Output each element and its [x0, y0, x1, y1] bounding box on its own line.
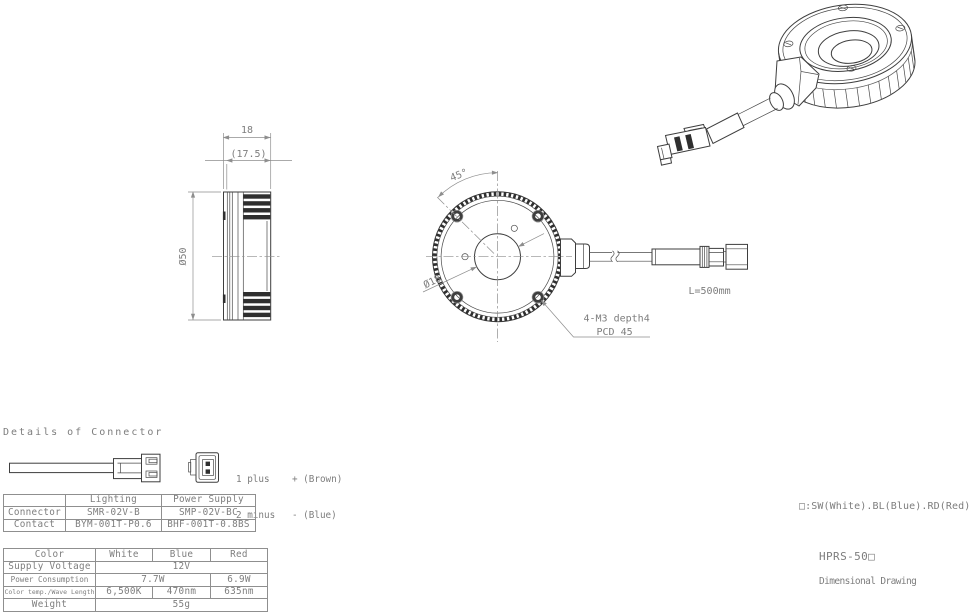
side-view: 18 (17.5) Ø50 — [177, 125, 292, 320]
model-number: HPRS-50□ — [819, 551, 875, 562]
dim-width-inner: (17.5) — [230, 149, 266, 160]
dim-mount-angle: 45° — [449, 167, 470, 184]
connector-table: Lighting Power Supply Connector SMR-02V-… — [3, 494, 256, 532]
label-mount-holes-1: 4-M3 depth4 — [584, 314, 650, 325]
connector-lighting-value: SMR-02V-B — [66, 507, 162, 519]
color-temp-white: 6,500K — [96, 586, 153, 599]
connector-table-corner — [4, 495, 66, 507]
dim-width: 18 — [241, 125, 253, 136]
table-row: Supply Voltage 12V — [4, 561, 268, 574]
details-of-connector-title: Details of Connector — [3, 428, 163, 438]
connector-table-header-lighting: Lighting — [66, 495, 162, 507]
power-consumption-red: 6.9W — [211, 574, 268, 587]
cable-end-connector — [726, 244, 748, 269]
connector-table-header-power: Power Supply — [162, 495, 256, 507]
table-row: Color White Blue Red — [4, 549, 268, 562]
pin1-label: 1 plus + (Brown) — [236, 474, 342, 486]
perspective-view — [658, 0, 921, 165]
label-cable-length: L=500mm — [689, 286, 731, 297]
spec-header-color: Color — [4, 549, 96, 562]
connector-row-label: Connector — [4, 507, 66, 519]
weight-value: 55g — [96, 599, 268, 612]
spec-header-white: White — [96, 549, 153, 562]
contact-lighting-value: BYM-001T-P0.6 — [66, 519, 162, 531]
table-row: Weight 55g — [4, 599, 268, 612]
spec-header-blue: Blue — [153, 549, 211, 562]
connector-power-value: SMP-02V-BC — [162, 507, 256, 519]
supply-voltage-label: Supply Voltage — [4, 561, 96, 574]
label-mount-holes-2: PCD 45 — [597, 327, 633, 338]
spec-header-red: Red — [211, 549, 268, 562]
front-view: 45° Ø18 4-M3 depth4 PCD 45 L=500mm — [421, 167, 747, 342]
power-consumption-white-blue: 7.7W — [96, 574, 211, 587]
connector-detail — [10, 453, 219, 483]
connector-front-view — [189, 453, 219, 483]
color-code-note: □:SW(White).BL(Blue).RD(Red) — [799, 502, 970, 512]
dim-outer-diameter: Ø50 — [177, 247, 189, 265]
color-temp-label: Color temp./Wave Length — [4, 586, 96, 599]
contact-row-label: Contact — [4, 519, 66, 531]
color-temp-red: 635nm — [211, 586, 268, 599]
supply-voltage-value: 12V — [96, 561, 268, 574]
drawing-type-label: Dimensional Drawing — [819, 577, 916, 587]
weight-label: Weight — [4, 599, 96, 612]
contact-power-value: BHF-001T-0.8BS — [162, 519, 256, 531]
pin-2 — [206, 469, 210, 473]
pilot-hole-top — [511, 225, 517, 231]
table-row: Contact BYM-001T-P0.6 BHF-001T-0.8BS — [4, 519, 256, 531]
power-consumption-label: Power Consumption — [4, 574, 96, 587]
color-temp-blue: 470nm — [153, 586, 211, 599]
connector-cable — [10, 463, 114, 472]
table-row: Connector SMR-02V-B SMP-02V-BC — [4, 507, 256, 519]
dimensional-drawing-sheet: 18 (17.5) Ø50 — [0, 0, 980, 615]
pin-1 — [206, 462, 210, 466]
table-row: Color temp./Wave Length 6,500K 470nm 635… — [4, 586, 268, 599]
table-row: Power Consumption 7.7W 6.9W — [4, 574, 268, 587]
spec-table: Color White Blue Red Supply Voltage 12V … — [3, 548, 268, 612]
cable-assembly — [561, 239, 748, 276]
cable-assembly-3d — [658, 57, 820, 165]
